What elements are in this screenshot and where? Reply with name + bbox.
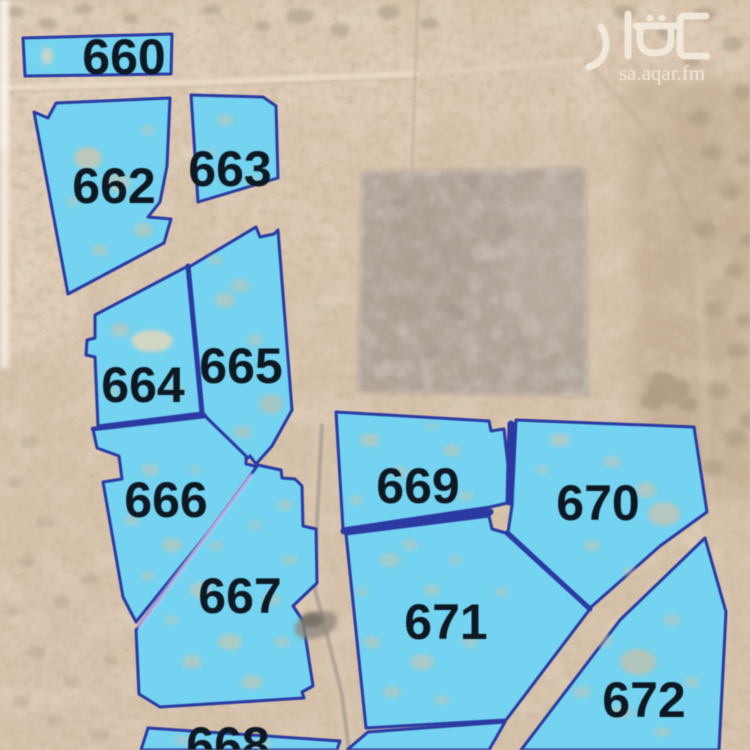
svg-text:669: 669 (376, 458, 459, 514)
svg-text:667: 667 (198, 568, 281, 624)
svg-text:660: 660 (82, 29, 165, 85)
svg-text:672: 672 (602, 672, 685, 728)
svg-text:670: 670 (556, 475, 639, 531)
svg-text:663: 663 (188, 141, 271, 197)
svg-text:664: 664 (101, 357, 185, 413)
svg-text:662: 662 (72, 158, 155, 214)
svg-text:666: 666 (124, 472, 207, 528)
svg-text:668: 668 (186, 717, 269, 750)
svg-text:sa.aqar.fm: sa.aqar.fm (619, 61, 705, 85)
svg-text:665: 665 (199, 338, 282, 394)
svg-text:671: 671 (404, 594, 487, 650)
